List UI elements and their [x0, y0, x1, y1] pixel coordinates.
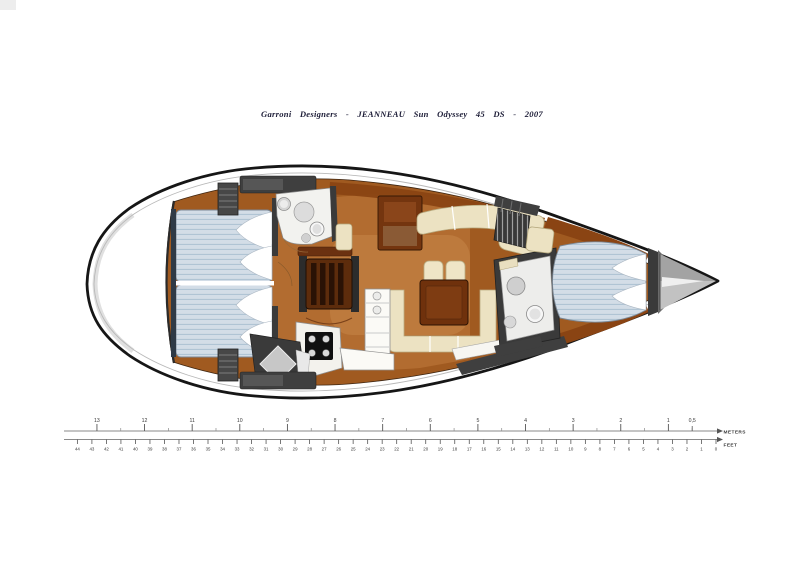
drain: [302, 234, 311, 243]
meter-tick-label: 7: [381, 418, 384, 424]
forward-head: [494, 248, 560, 350]
meter-tick-label: 9: [286, 418, 289, 424]
feet-tick-label: 30: [278, 447, 283, 452]
feet-tick-label: 24: [365, 447, 370, 452]
feet-tick-label: 3: [671, 447, 674, 452]
scale-ruler: 131211109876543210,544434241403938373635…: [64, 418, 723, 452]
shower-seat: [294, 202, 314, 222]
meter-tick-label: 2: [619, 418, 622, 424]
feet-tick-label: 35: [206, 447, 211, 452]
meter-tick-label: 13: [94, 418, 100, 424]
berth-foot-trim: [171, 209, 176, 357]
feet-tick-label: 5: [642, 447, 645, 452]
feet-tick-label: 28: [307, 447, 312, 452]
feet-tick-label: 16: [481, 447, 486, 452]
feet-tick-label: 41: [118, 447, 123, 452]
feet-tick-label: 4: [657, 447, 660, 452]
fwd-berth: [553, 242, 647, 322]
feet-tick-label: 9: [584, 447, 587, 452]
yacht-deck-plan-page: Garroni Designers - JEANNEAU Sun Odyssey…: [0, 0, 800, 565]
feet-tick-label: 17: [467, 447, 472, 452]
scan-artifact: [0, 0, 16, 10]
feet-tick-label: 43: [89, 447, 94, 452]
locker-cabinet: [526, 227, 555, 254]
deck-band-starboard-inner: [243, 375, 283, 386]
fwd-shower-seat: [507, 277, 525, 295]
feet-tick-label: 7: [613, 447, 616, 452]
aft-locker-port: [218, 183, 238, 215]
feet-tick-label: 15: [496, 447, 501, 452]
feet-tick-label: 8: [599, 447, 602, 452]
port-cabinet-lower: [383, 226, 417, 246]
feet-tick-label: 36: [191, 447, 196, 452]
deck-band-port-inner: [243, 179, 283, 190]
feet-tick-label: 0: [715, 447, 718, 452]
meter-tick-label: 8: [334, 418, 337, 424]
feet-tick-label: 29: [293, 447, 298, 452]
feet-tick-label: 20: [423, 447, 428, 452]
meter-tick-label: 6: [429, 418, 432, 424]
meters-arrow: [717, 428, 723, 433]
meter-tick-label: 12: [142, 418, 148, 424]
meters-label: METERS: [724, 430, 747, 436]
half-meter-label: 0,5: [689, 418, 696, 424]
feet-label: FEET: [724, 443, 738, 449]
drawing-title: Garroni Designers - JEANNEAU Sun Odyssey…: [261, 109, 543, 119]
feet-tick-label: 19: [438, 447, 443, 452]
feet-tick-label: 26: [336, 447, 341, 452]
feet-tick-label: 22: [394, 447, 399, 452]
feet-tick-label: 12: [539, 447, 544, 452]
feet-tick-label: 1: [700, 447, 703, 452]
feet-tick-label: 10: [568, 447, 573, 452]
feet-tick-label: 39: [148, 447, 153, 452]
meter-tick-label: 3: [572, 418, 575, 424]
feet-tick-label: 2: [686, 447, 689, 452]
feet-tick-label: 14: [510, 447, 515, 452]
feet-tick-label: 21: [409, 447, 414, 452]
head-cabinet: [336, 224, 352, 250]
berth-divider: [172, 281, 274, 286]
meter-tick-label: 1: [667, 418, 670, 424]
fwd-washbasin: [504, 316, 516, 328]
feet-tick-label: 31: [264, 447, 269, 452]
forward-cabin: [553, 242, 667, 322]
feet-tick-label: 40: [133, 447, 138, 452]
feet-tick-label: 38: [162, 447, 167, 452]
meter-tick-label: 4: [524, 418, 527, 424]
yacht-deck-plan: Garroni Designers - JEANNEAU Sun Odyssey…: [0, 0, 800, 565]
fwd-toilet-bowl: [530, 309, 541, 320]
fwd-berth-endwall: [648, 248, 658, 316]
feet-tick-label: 11: [554, 447, 559, 452]
fwd-head-floor: [500, 256, 554, 341]
meter-tick-label: 11: [189, 418, 194, 424]
feet-tick-label: 23: [380, 447, 385, 452]
feet-tick-label: 44: [75, 447, 80, 452]
feet-tick-label: 27: [322, 447, 327, 452]
aft-locker-starboard: [218, 349, 238, 381]
washbasin-bowl: [280, 200, 288, 208]
feet-tick-label: 34: [220, 447, 225, 452]
toilet-bowl: [313, 224, 322, 234]
feet-tick-label: 32: [249, 447, 254, 452]
feet-arrow: [717, 437, 723, 442]
feet-tick-label: 6: [628, 447, 631, 452]
feet-tick-label: 42: [104, 447, 109, 452]
galley-sink-2: [373, 306, 381, 314]
port-cabinet-panel: [384, 202, 416, 222]
saloon-table-panel: [426, 286, 462, 319]
anchor-locker: [660, 254, 716, 310]
meter-tick-label: 10: [237, 418, 243, 424]
meter-tick-label: 5: [476, 418, 479, 424]
feet-tick-label: 25: [351, 447, 356, 452]
galley-sink-1: [373, 292, 381, 300]
feet-tick-label: 18: [452, 447, 457, 452]
feet-tick-label: 37: [177, 447, 182, 452]
feet-tick-label: 33: [235, 447, 240, 452]
feet-tick-label: 13: [525, 447, 530, 452]
